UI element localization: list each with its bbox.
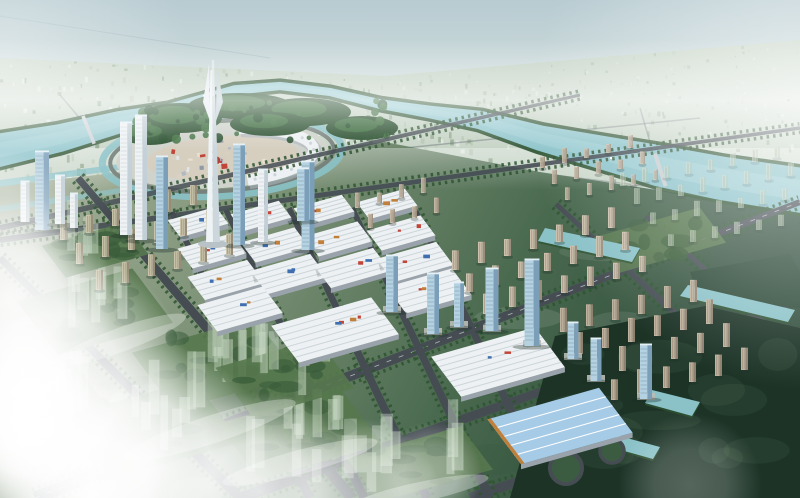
scene-canvas: [0, 0, 800, 498]
aerial-city-rendering: [0, 0, 800, 498]
